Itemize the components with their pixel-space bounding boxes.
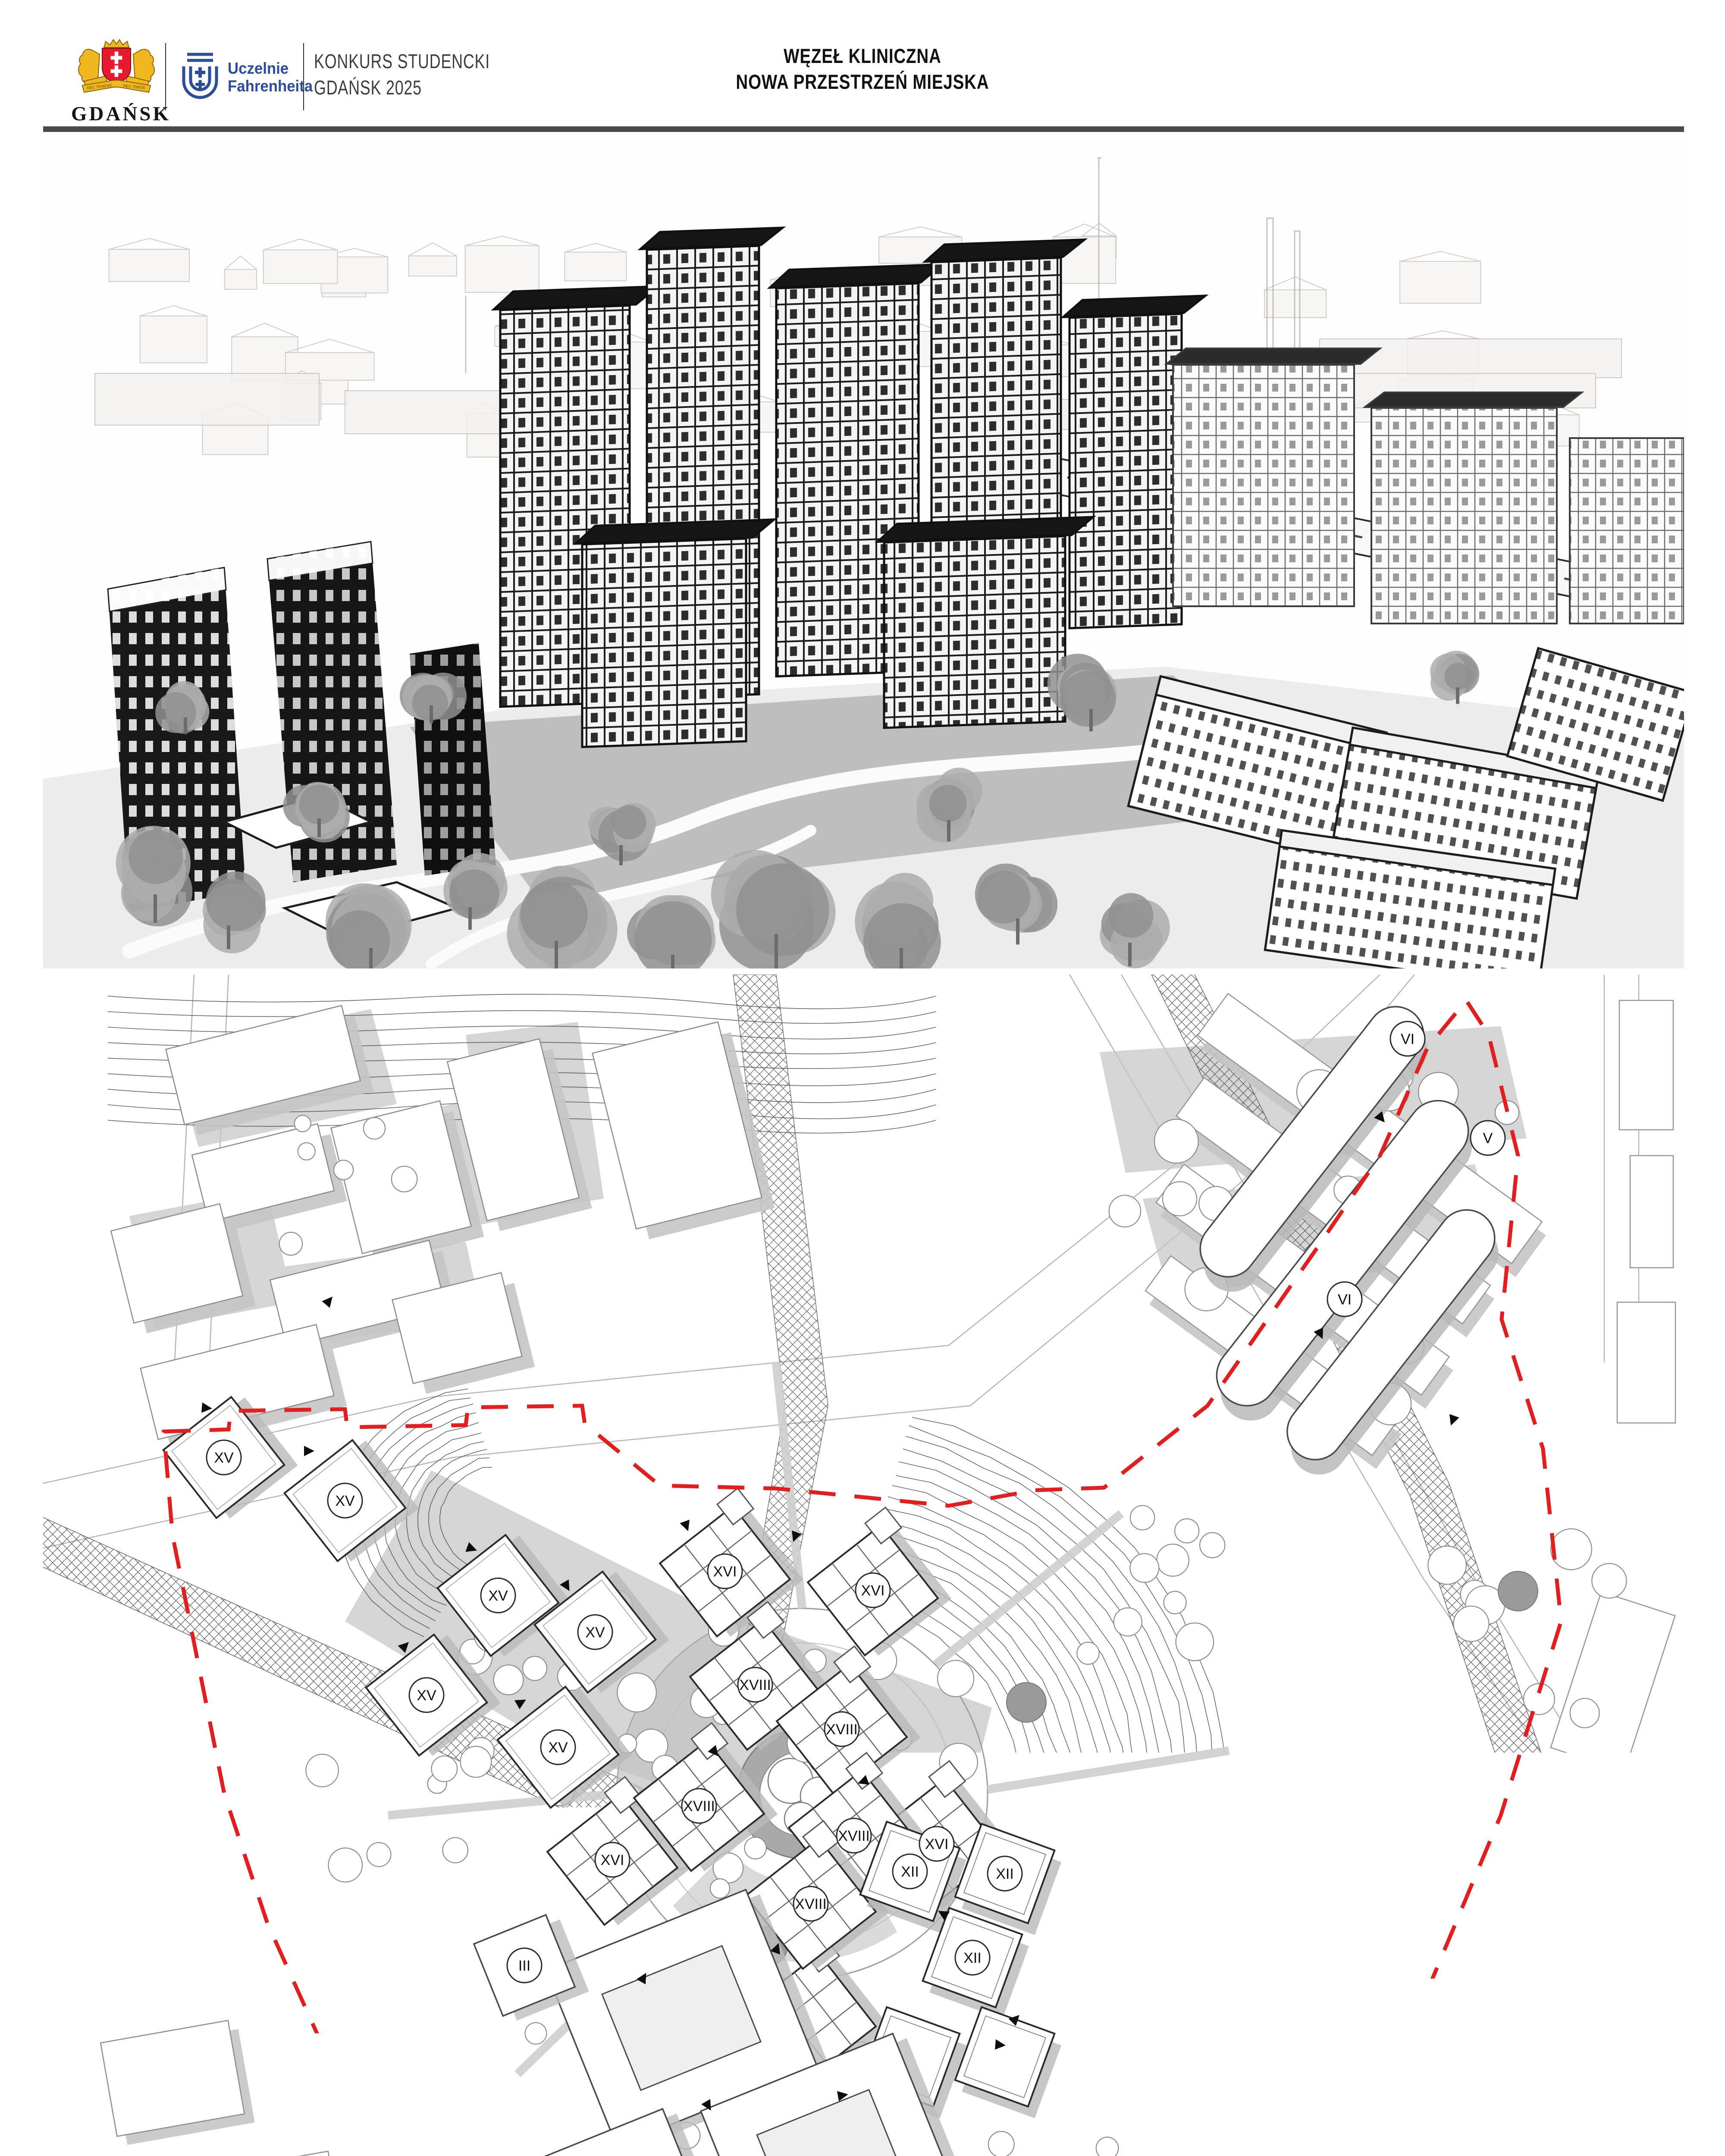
svg-text:VI: VI xyxy=(1338,1291,1352,1308)
svg-text:XII: XII xyxy=(996,1866,1014,1882)
board-title-line2: NOWA PRZESTRZEŃ MIEJSKA xyxy=(736,69,989,95)
competition-board-page: NEC TEMERE NEC TIMIDE GDAŃSK Uczelnie Fa… xyxy=(0,0,1725,2156)
svg-text:III: III xyxy=(518,1958,530,1974)
svg-text:XV: XV xyxy=(417,1687,436,1704)
svg-text:XII: XII xyxy=(901,1864,919,1880)
svg-text:XII: XII xyxy=(901,2049,919,2065)
svg-text:XVIII: XVIII xyxy=(739,1677,771,1693)
svg-text:XVIII: XVIII xyxy=(683,1798,715,1814)
svg-text:XV: XV xyxy=(335,1493,355,1509)
svg-text:XVIII: XVIII xyxy=(838,1828,870,1844)
header-rule xyxy=(43,126,1684,132)
svg-text:XVIII: XVIII xyxy=(795,1896,827,1912)
svg-text:VI: VI xyxy=(1401,1031,1414,1047)
svg-text:XVI: XVI xyxy=(925,1836,949,1852)
svg-text:XV: XV xyxy=(214,1450,234,1466)
svg-text:XVI: XVI xyxy=(601,1852,624,1868)
site-plan: XVXVXVXVXVXVXVIXVIXVIXVIXVIXVIIIXVIIIXVI… xyxy=(43,975,1684,2156)
svg-text:XV: XV xyxy=(585,1624,605,1641)
svg-text:V: V xyxy=(1483,1130,1493,1147)
aerial-render-drawing xyxy=(43,132,1684,968)
svg-text:XII: XII xyxy=(996,2049,1014,2065)
svg-text:XV: XV xyxy=(548,1739,568,1756)
aerial-render xyxy=(43,132,1684,968)
svg-text:XII: XII xyxy=(963,1950,982,1966)
svg-text:XVI: XVI xyxy=(713,1564,737,1580)
site-plan-drawing: XVXVXVXVXVXVXVIXVIXVIXVIXVIXVIIIXVIIIXVI… xyxy=(43,975,1684,2156)
board-title: WĘZEŁ KLINICZNA NOWA PRZESTRZEŃ MIEJSKA xyxy=(0,43,1725,95)
svg-text:XVI: XVI xyxy=(861,1583,885,1599)
svg-text:VI: VI xyxy=(838,2143,852,2156)
svg-text:VI: VI xyxy=(675,2003,689,2020)
board-title-line1: WĘZEŁ KLINICZNA xyxy=(784,43,941,69)
svg-text:XVIII: XVIII xyxy=(826,1721,858,1738)
svg-text:XVI: XVI xyxy=(799,2011,823,2027)
svg-text:XV: XV xyxy=(488,1588,508,1604)
city-label: GDAŃSK xyxy=(71,102,162,125)
